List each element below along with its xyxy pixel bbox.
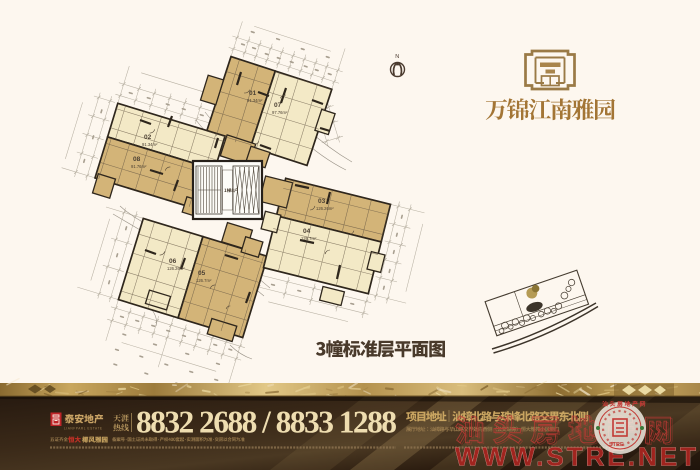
svg-text:01: 01 (249, 90, 257, 97)
svg-text:97.76m²: 97.76m² (272, 110, 288, 115)
svg-text:05: 05 (198, 270, 206, 277)
svg-text:06: 06 (169, 258, 177, 265)
svg-text:126.7m²: 126.7m² (196, 278, 212, 283)
svg-text:WWW.STRE.NET: WWW.STRE.NET (455, 442, 696, 470)
svg-text:03: 03 (318, 198, 326, 205)
svg-text:07: 07 (274, 102, 282, 109)
svg-text:04: 04 (303, 228, 311, 235)
svg-text:126.7m²: 126.7m² (301, 236, 317, 241)
svg-text:08: 08 (133, 156, 141, 163)
svg-text:N: N (395, 54, 399, 60)
svg-text:91.76m²: 91.76m² (131, 164, 147, 169)
svg-text:8832 2688 / 8833 1288: 8832 2688 / 8833 1288 (136, 405, 397, 440)
svg-text:LIANFPARL ESTATE: LIANFPARL ESTATE (64, 427, 103, 431)
svg-text:91.34m²: 91.34m² (247, 98, 263, 103)
svg-text:02: 02 (144, 134, 152, 141)
svg-text:126.26m²: 126.26m² (316, 206, 334, 211)
svg-text:91.34m²: 91.34m² (142, 142, 158, 147)
svg-text:126.26m²: 126.26m² (167, 266, 185, 271)
svg-text:STRE: STRE (609, 442, 624, 448)
